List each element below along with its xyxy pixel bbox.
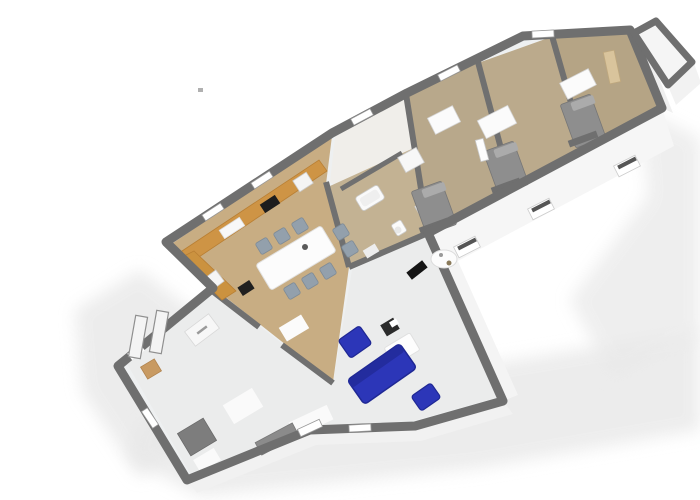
floorplan-stage [0, 0, 700, 500]
window-bottom-2 [349, 424, 371, 432]
dining-table-bowl [302, 244, 308, 250]
decor-plant-dot-1 [447, 261, 452, 266]
toilet-seat [395, 227, 402, 234]
decor-plant-dot-2 [439, 253, 443, 257]
window-north-3 [532, 30, 554, 38]
floorplan-canvas [0, 0, 700, 500]
floorplan-scene [75, 21, 700, 496]
decor-plant-white [431, 250, 457, 268]
stray-mark [198, 88, 203, 92]
